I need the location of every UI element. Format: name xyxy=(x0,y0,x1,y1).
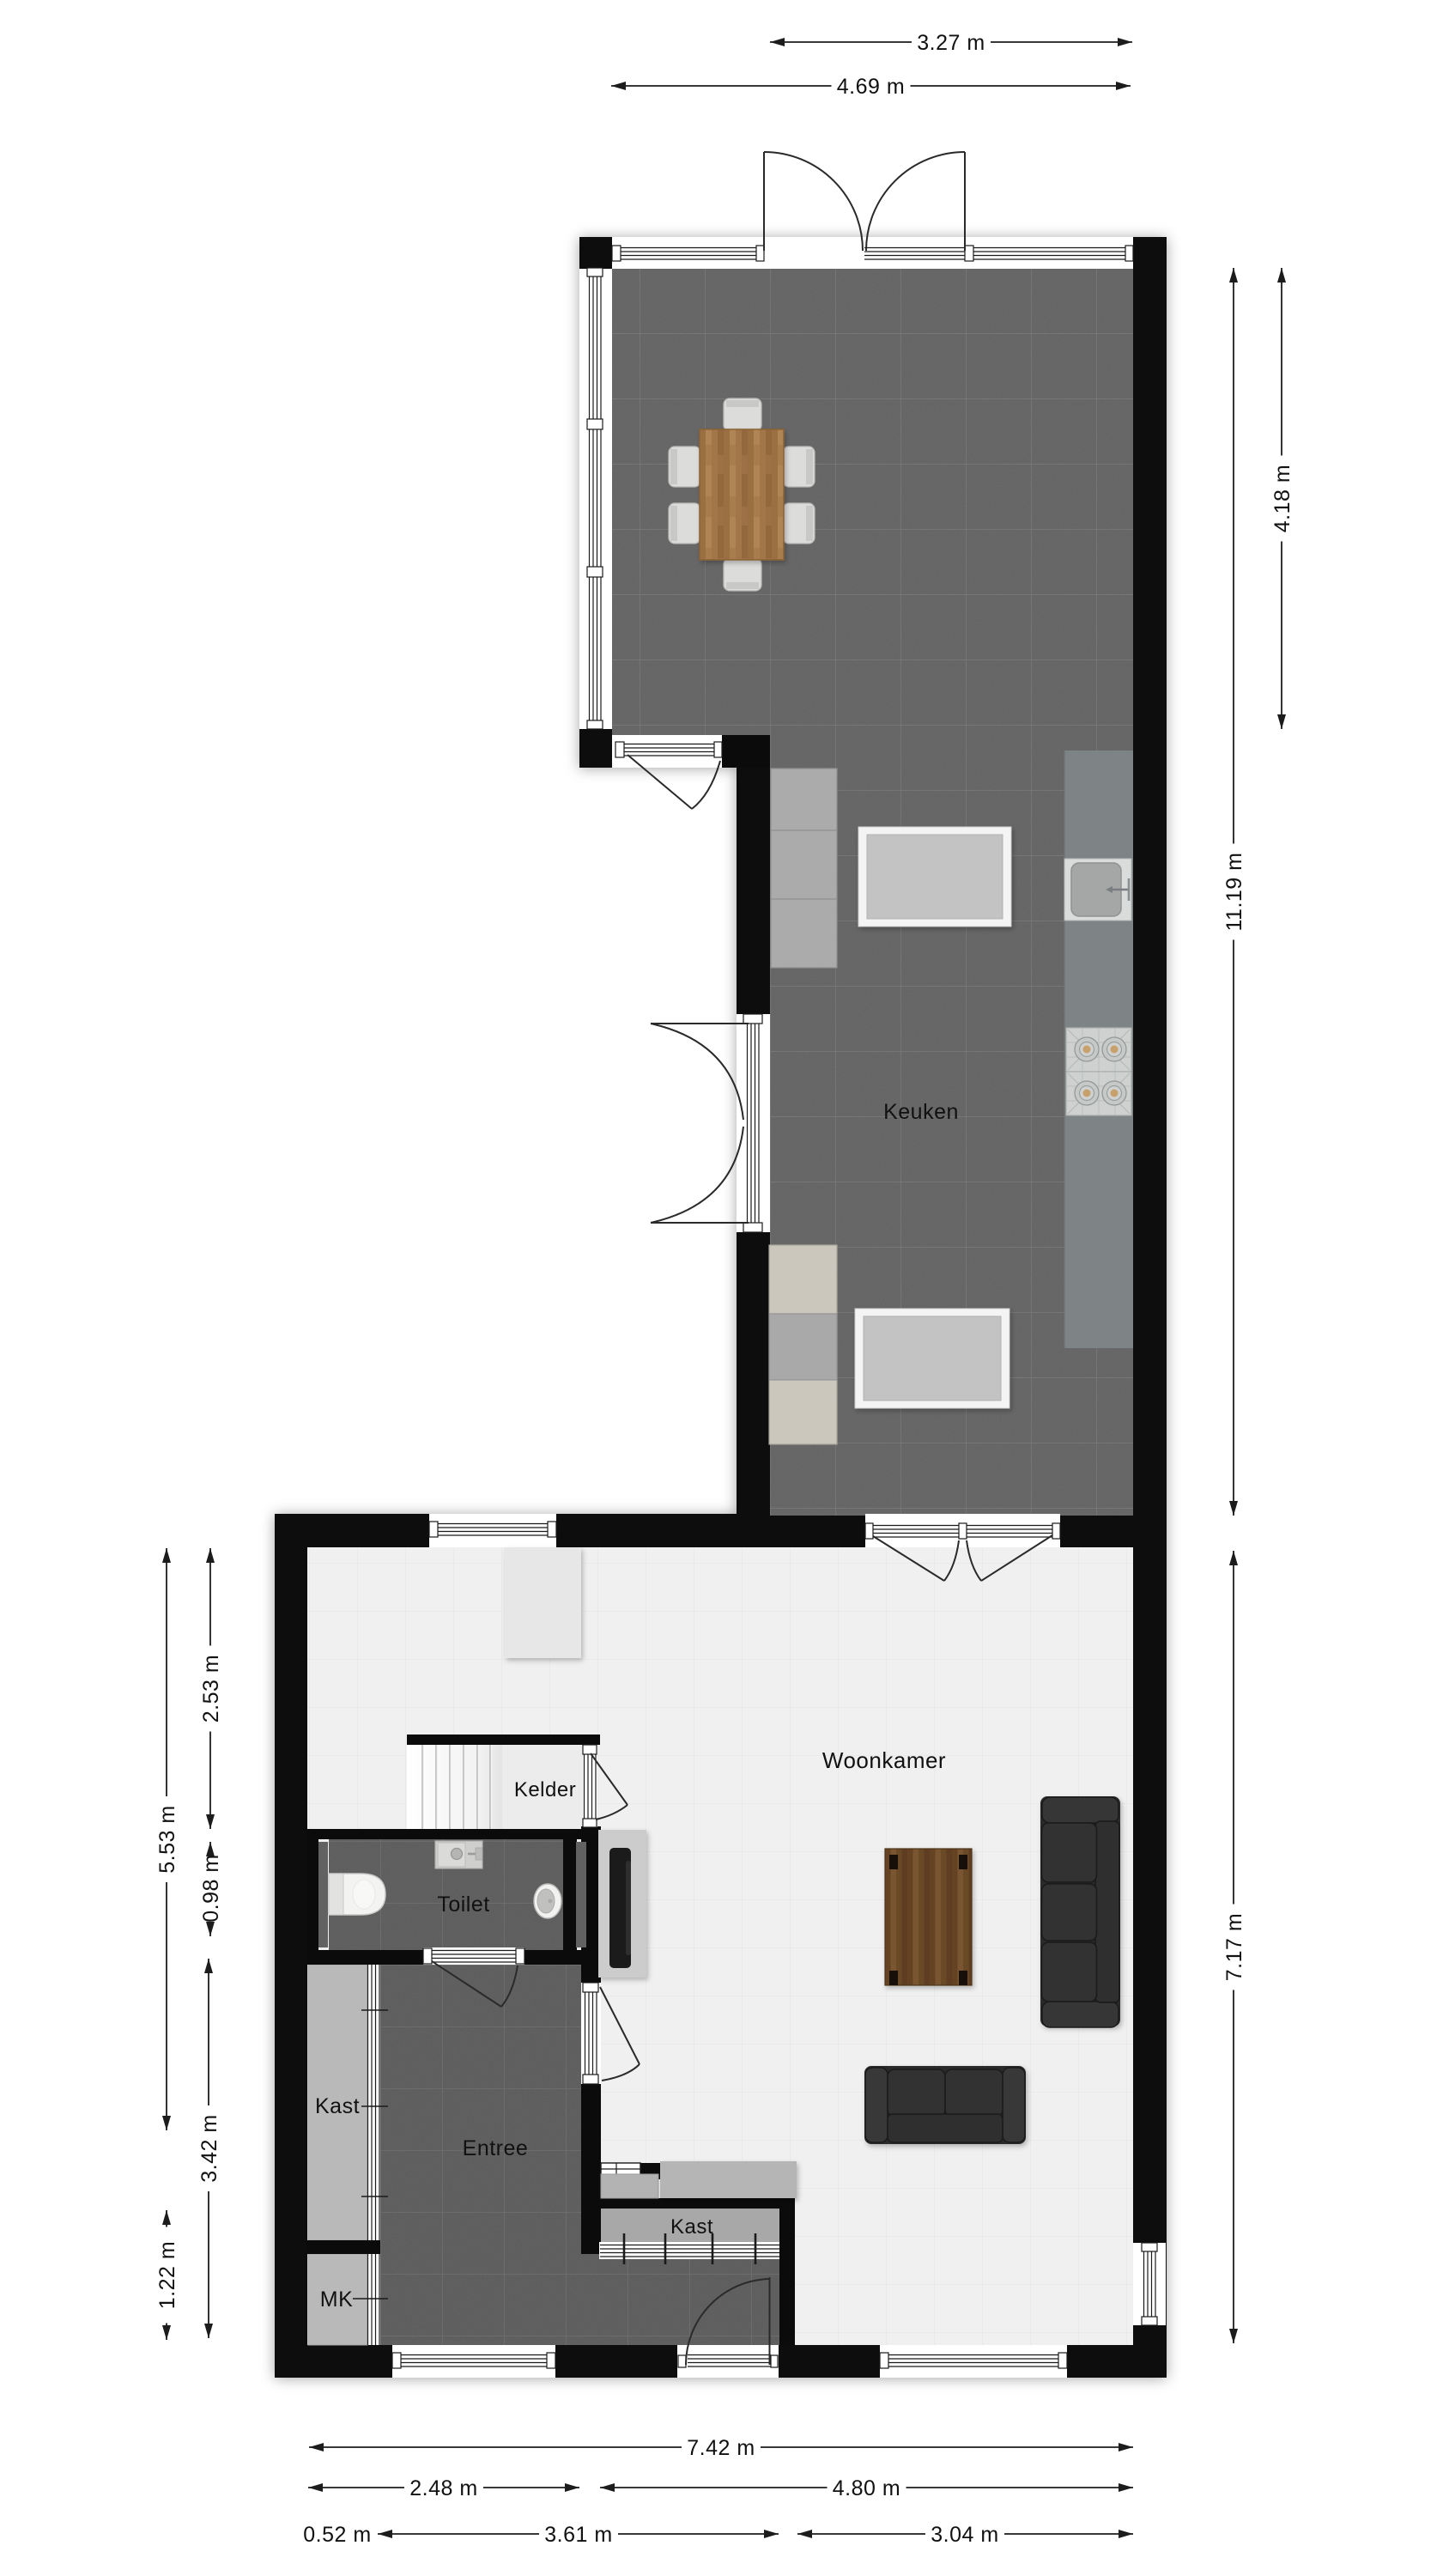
svg-text:11.19 m: 11.19 m xyxy=(1222,853,1246,932)
svg-text:3.27 m: 3.27 m xyxy=(917,31,985,55)
svg-text:Keuken: Keuken xyxy=(883,1100,959,1124)
svg-text:Woonkamer: Woonkamer xyxy=(822,1747,946,1773)
svg-text:Toilet: Toilet xyxy=(437,1893,489,1917)
svg-text:2.48 m: 2.48 m xyxy=(409,2476,477,2500)
svg-text:4.18 m: 4.18 m xyxy=(1270,465,1294,532)
svg-text:0.52 m: 0.52 m xyxy=(303,2523,371,2547)
svg-text:Kast: Kast xyxy=(315,2094,360,2118)
svg-text:2.53 m: 2.53 m xyxy=(199,1655,223,1722)
svg-text:4.80 m: 4.80 m xyxy=(833,2476,900,2500)
svg-text:MK: MK xyxy=(320,2287,354,2312)
svg-text:3.42 m: 3.42 m xyxy=(197,2114,221,2182)
svg-text:7.17 m: 7.17 m xyxy=(1222,1913,1246,1981)
svg-text:1.22 m: 1.22 m xyxy=(155,2241,179,2309)
svg-text:5.53 m: 5.53 m xyxy=(155,1805,179,1873)
svg-text:4.69 m: 4.69 m xyxy=(837,75,905,99)
svg-text:3.04 m: 3.04 m xyxy=(931,2523,998,2547)
svg-text:7.42 m: 7.42 m xyxy=(687,2436,755,2460)
svg-text:3.61 m: 3.61 m xyxy=(544,2523,612,2547)
svg-text:Entree: Entree xyxy=(463,2136,529,2160)
svg-text:0.98 m: 0.98 m xyxy=(199,1854,223,1922)
svg-text:Kast: Kast xyxy=(670,2215,713,2239)
svg-text:Kelder: Kelder xyxy=(514,1778,576,1801)
